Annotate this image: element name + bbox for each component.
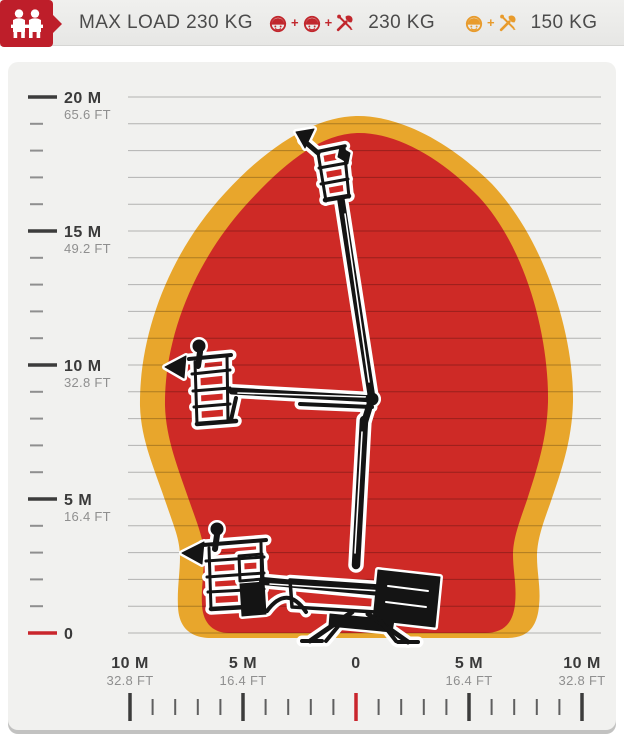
x-tick-label-m: 10 M bbox=[111, 655, 149, 672]
y-axis: 20 M65.6 FT15 M49.2 FT10 M32.8 FT5 M16.4… bbox=[28, 90, 111, 643]
envelope-chart: 20 M65.6 FT15 M49.2 FT10 M32.8 FT5 M16.4… bbox=[0, 0, 624, 739]
y-tick-label-ft: 65.6 FT bbox=[64, 107, 111, 122]
silhouette-ink bbox=[240, 582, 266, 616]
silhouette-ink bbox=[227, 357, 228, 420]
x-tick-label-m: 5 M bbox=[455, 655, 483, 672]
x-tick-label-ft: 16.4 FT bbox=[220, 673, 267, 688]
y-tick-label-m: 15 M bbox=[64, 224, 102, 241]
x-tick-label-m: 5 M bbox=[229, 655, 257, 672]
silhouette-ink bbox=[373, 570, 440, 627]
y-tick-label-ft: 49.2 FT bbox=[64, 241, 111, 256]
x-tick-label-ft: 32.8 FT bbox=[107, 673, 154, 688]
x-tick-label-ft: 32.8 FT bbox=[559, 673, 606, 688]
x-tick-label-m: 10 M bbox=[563, 655, 601, 672]
silhouette-ink bbox=[195, 362, 197, 424]
silhouette-ink bbox=[209, 548, 211, 609]
y-tick-label-ft: 16.4 FT bbox=[64, 509, 111, 524]
x-axis: 10 M32.8 FT5 M16.4 FT05 M16.4 FT10 M32.8… bbox=[107, 655, 606, 721]
y-tick-label-m: 10 M bbox=[64, 358, 102, 375]
y-tick-label-ft: 32.8 FT bbox=[64, 375, 111, 390]
x-tick-label-ft: 16.4 FT bbox=[446, 673, 493, 688]
y-tick-label-m: 5 M bbox=[64, 492, 92, 509]
y-tick-label-m: 20 M bbox=[64, 90, 102, 107]
y-tick-label-m: 0 bbox=[64, 626, 73, 643]
x-tick-label-m: 0 bbox=[351, 655, 360, 672]
